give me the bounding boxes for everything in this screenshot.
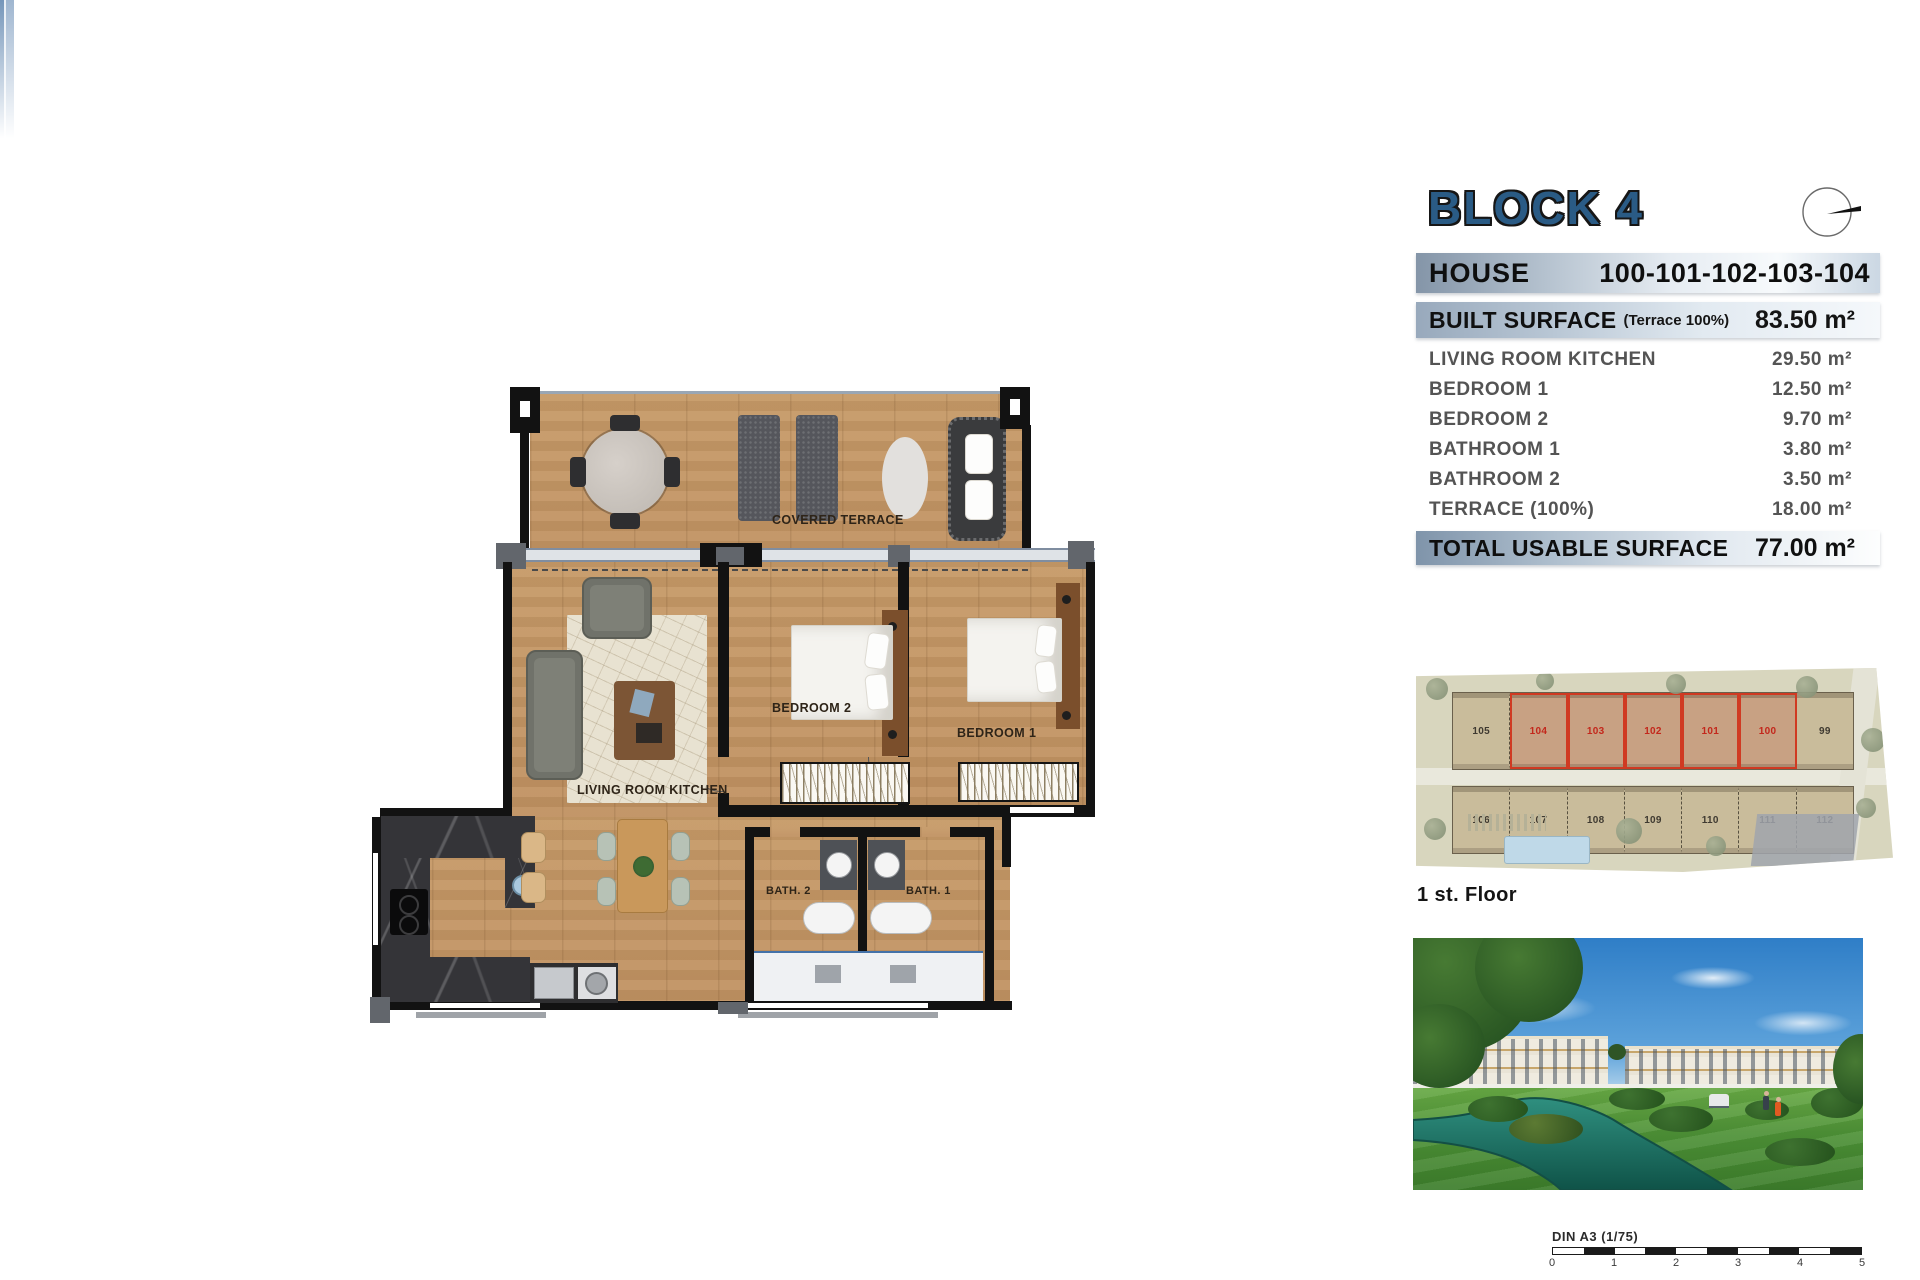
terrace-chair: [610, 513, 640, 529]
room-label: BATHROOM 1: [1429, 439, 1560, 461]
bush: [1765, 1138, 1835, 1166]
tree: [1666, 674, 1686, 694]
scale-label: DIN A3 (1/75): [1552, 1229, 1638, 1244]
bath1-door-gap: [920, 827, 950, 837]
kitchen-counter-bottom: [384, 957, 530, 1002]
bush: [1509, 1114, 1583, 1144]
table-book: [629, 689, 654, 717]
bath-left-wall: [745, 827, 754, 1002]
house-label: HOUSE: [1429, 258, 1530, 289]
site-unit: 99: [1797, 693, 1853, 769]
room-value: 12.50 m²: [1772, 379, 1852, 401]
cooktop: [390, 889, 428, 935]
burner: [399, 915, 419, 935]
table-tray: [636, 723, 662, 743]
scale-ticks: 0 1 2 3 4 5: [1552, 1257, 1862, 1271]
room-value: 3.50 m²: [1783, 469, 1852, 491]
steel-sink: [534, 967, 574, 999]
kitchen-counter-top: [381, 816, 535, 858]
built-surface-note: (Terrace 100%): [1624, 312, 1730, 329]
tree: [1706, 836, 1726, 856]
golfer: [1775, 1102, 1781, 1116]
armchair: [582, 577, 652, 639]
room-value: 3.80 m²: [1783, 439, 1852, 461]
site-unit-highlighted: 102: [1625, 693, 1682, 769]
wall-living-bed2: [718, 562, 729, 757]
total-surface-bar: TOTAL USABLE SURFACE 77.00 m²: [1416, 531, 1880, 565]
golfer: [1763, 1096, 1769, 1110]
bath2-tub: [803, 902, 855, 934]
site-unit-highlighted: 103: [1568, 693, 1625, 769]
total-label: TOTAL USABLE SURFACE: [1429, 535, 1728, 562]
terrace-boundary-dashed: [532, 569, 1028, 571]
unit-number: 109: [1644, 815, 1662, 826]
washing-machine: [578, 967, 616, 999]
floor-caption: 1 st. Floor: [1417, 884, 1517, 907]
bed1-wardrobe: [958, 762, 1079, 802]
wall-left-upper: [503, 562, 512, 817]
floor-plan: BATH. 2 BATH. 1 BEDROOM 2 BEDROOM 1 LIV: [370, 385, 1100, 1025]
terrace-wall-right: [1022, 425, 1031, 559]
tree: [1796, 676, 1818, 698]
shower-fixture: [890, 965, 916, 983]
terrace-wall-left: [520, 429, 529, 559]
dining-table: [617, 819, 668, 913]
scale-tick: 5: [1859, 1257, 1865, 1269]
table-row: BEDROOM 2 9.70 m²: [1416, 405, 1880, 435]
bed1: [967, 618, 1062, 702]
sliding-glass-wall: [503, 548, 1095, 562]
dining-chair: [671, 877, 690, 906]
scale-tick: 4: [1797, 1257, 1803, 1269]
site-unit: 105: [1453, 693, 1510, 769]
sofa-pillow: [965, 480, 993, 520]
tree: [1424, 818, 1446, 840]
pool: [1504, 836, 1590, 864]
terrace-chair: [610, 415, 640, 431]
tree: [1616, 818, 1642, 844]
pillar: [718, 1002, 748, 1014]
room-surface-table: LIVING ROOM KITCHEN 29.50 m² BEDROOM 1 1…: [1416, 345, 1880, 525]
unit-number: 100: [1759, 726, 1777, 737]
unit-number: 105: [1472, 726, 1490, 737]
bath1-vanity: [868, 840, 905, 890]
scale-tick: 3: [1735, 1257, 1741, 1269]
built-surface-label: BUILT SURFACE: [1429, 307, 1617, 334]
bottom-window: [748, 1003, 928, 1008]
block-title: BLOCK 4: [1428, 183, 1644, 234]
site-plan: 105 104 103 102 101 100 99 106 107 108 1…: [1416, 668, 1893, 872]
bath2-door-gap: [770, 827, 800, 837]
scale-bar: [1552, 1247, 1862, 1255]
bed2-pillow: [864, 673, 890, 711]
plaza: [1751, 814, 1859, 866]
wall-step: [1002, 817, 1011, 867]
site-road: [1416, 768, 1893, 785]
accent-strip-fade: [0, 0, 14, 150]
site-unit-highlighted: 101: [1682, 693, 1739, 769]
bedroom1-label: BEDROOM 1: [957, 726, 1036, 740]
palm-tree: [1608, 1044, 1626, 1060]
terrace-chair: [570, 457, 586, 487]
living-label: LIVING ROOM KITCHEN: [577, 783, 728, 797]
terrace-chair: [664, 457, 680, 487]
site-unit-highlighted: 100: [1739, 693, 1796, 769]
unit-number: 104: [1530, 726, 1548, 737]
bed1-lamp: [1062, 711, 1071, 720]
total-value: 77.00 m²: [1755, 534, 1855, 563]
site-unit-highlighted: 104: [1510, 693, 1567, 769]
room-value: 9.70 m²: [1783, 409, 1852, 431]
exterior-render-photo: [1413, 938, 1863, 1190]
bed1-lamp: [1062, 595, 1071, 604]
dining-chair: [597, 832, 616, 861]
golf-cart: [1709, 1094, 1729, 1106]
burner: [399, 895, 419, 915]
shower-fixture: [815, 965, 841, 983]
washer-door: [585, 972, 608, 995]
tree: [1861, 728, 1885, 752]
tree: [1856, 798, 1876, 818]
terrace-pillar: [510, 387, 540, 433]
house-numbers: 100-101-102-103-104: [1599, 258, 1870, 289]
bush: [1609, 1088, 1665, 1110]
bath2-vanity: [820, 840, 857, 890]
scale-tick: 0: [1549, 1257, 1555, 1269]
unit-number: 102: [1644, 726, 1662, 737]
table-row: BATHROOM 2 3.50 m²: [1416, 465, 1880, 495]
sun-lounger: [796, 415, 838, 521]
building-row-top: 105 104 103 102 101 100 99: [1452, 692, 1854, 770]
room-label: BEDROOM 2: [1429, 409, 1549, 431]
bed2-wardrobe: [780, 762, 910, 804]
bottom-window: [430, 1003, 540, 1008]
built-surface-value: 83.50 m²: [1755, 306, 1855, 335]
pillar: [370, 997, 390, 1023]
pillar-hole: [1010, 399, 1020, 415]
tree: [1426, 678, 1448, 700]
dining-chair: [671, 832, 690, 861]
appliance-counter: [530, 963, 618, 1003]
room-label: BATHROOM 2: [1429, 469, 1560, 491]
pool-deck: [1468, 814, 1546, 831]
terrace-oval-rug: [882, 437, 928, 519]
sofa: [526, 650, 583, 780]
unit-number: 99: [1819, 726, 1831, 737]
brochure-page: BATH. 2 BATH. 1 BEDROOM 2 BEDROOM 1 LIV: [0, 0, 1920, 1280]
bed2-lamp: [888, 730, 897, 739]
terrace-sofa: [948, 417, 1006, 541]
window-sill: [416, 1012, 546, 1018]
table-row: TERRACE (100%) 18.00 m²: [1416, 495, 1880, 525]
window-sill: [738, 1012, 938, 1018]
bath2-label: BATH. 2: [766, 885, 811, 897]
table-row: BATHROOM 1 3.80 m²: [1416, 435, 1880, 465]
bar-stool: [521, 832, 546, 863]
bedroom1-window: [1010, 807, 1074, 813]
coffee-table: [614, 681, 675, 760]
terrace-pillar: [1000, 387, 1030, 429]
bath-right-wall: [985, 827, 994, 1002]
unit-number: 108: [1587, 815, 1605, 826]
bath-shower-zone: [754, 951, 983, 1001]
covered-terrace-label: COVERED TERRACE: [772, 513, 904, 527]
built-surface-bar: BUILT SURFACE (Terrace 100%) 83.50 m²: [1416, 302, 1880, 338]
room-label: BEDROOM 1: [1429, 379, 1549, 401]
sofa-pillow: [965, 434, 993, 474]
pillar-hole: [520, 401, 530, 417]
bath2-basin: [826, 852, 852, 878]
north-arrow-icon: [1801, 186, 1863, 238]
bedroom2-label: BEDROOM 2: [772, 701, 851, 715]
bed1-pillow: [1034, 624, 1058, 658]
room-value: 29.50 m²: [1772, 349, 1852, 371]
unit-number: 110: [1702, 815, 1719, 826]
bed2-pillow: [864, 632, 891, 671]
bed1-pillow: [1034, 660, 1058, 694]
room-label: TERRACE (100%): [1429, 499, 1594, 521]
unit-number: 103: [1587, 726, 1605, 737]
table-row: LIVING ROOM KITCHEN 29.50 m²: [1416, 345, 1880, 375]
tree: [1536, 672, 1554, 690]
bush: [1649, 1106, 1713, 1132]
scale-tick: 2: [1673, 1257, 1679, 1269]
table-row: BEDROOM 1 12.50 m²: [1416, 375, 1880, 405]
wall-right-upper: [1086, 562, 1095, 805]
table-plant: [633, 856, 654, 877]
scale-tick: 1: [1611, 1257, 1617, 1269]
room-label: LIVING ROOM KITCHEN: [1429, 349, 1656, 371]
terrace-round-table: [582, 429, 668, 515]
sun-lounger: [738, 415, 780, 521]
bar-stool: [521, 872, 546, 903]
dining-chair: [597, 877, 616, 906]
bath1-tub: [870, 902, 932, 934]
unit-number: 101: [1701, 726, 1719, 737]
kitchen-window: [373, 853, 378, 945]
bath1-basin: [874, 852, 900, 878]
house-header-bar: HOUSE 100-101-102-103-104: [1416, 253, 1880, 293]
room-value: 18.00 m²: [1772, 499, 1852, 521]
page-accent-strip: [0, 0, 14, 150]
bath1-label: BATH. 1: [906, 885, 951, 897]
